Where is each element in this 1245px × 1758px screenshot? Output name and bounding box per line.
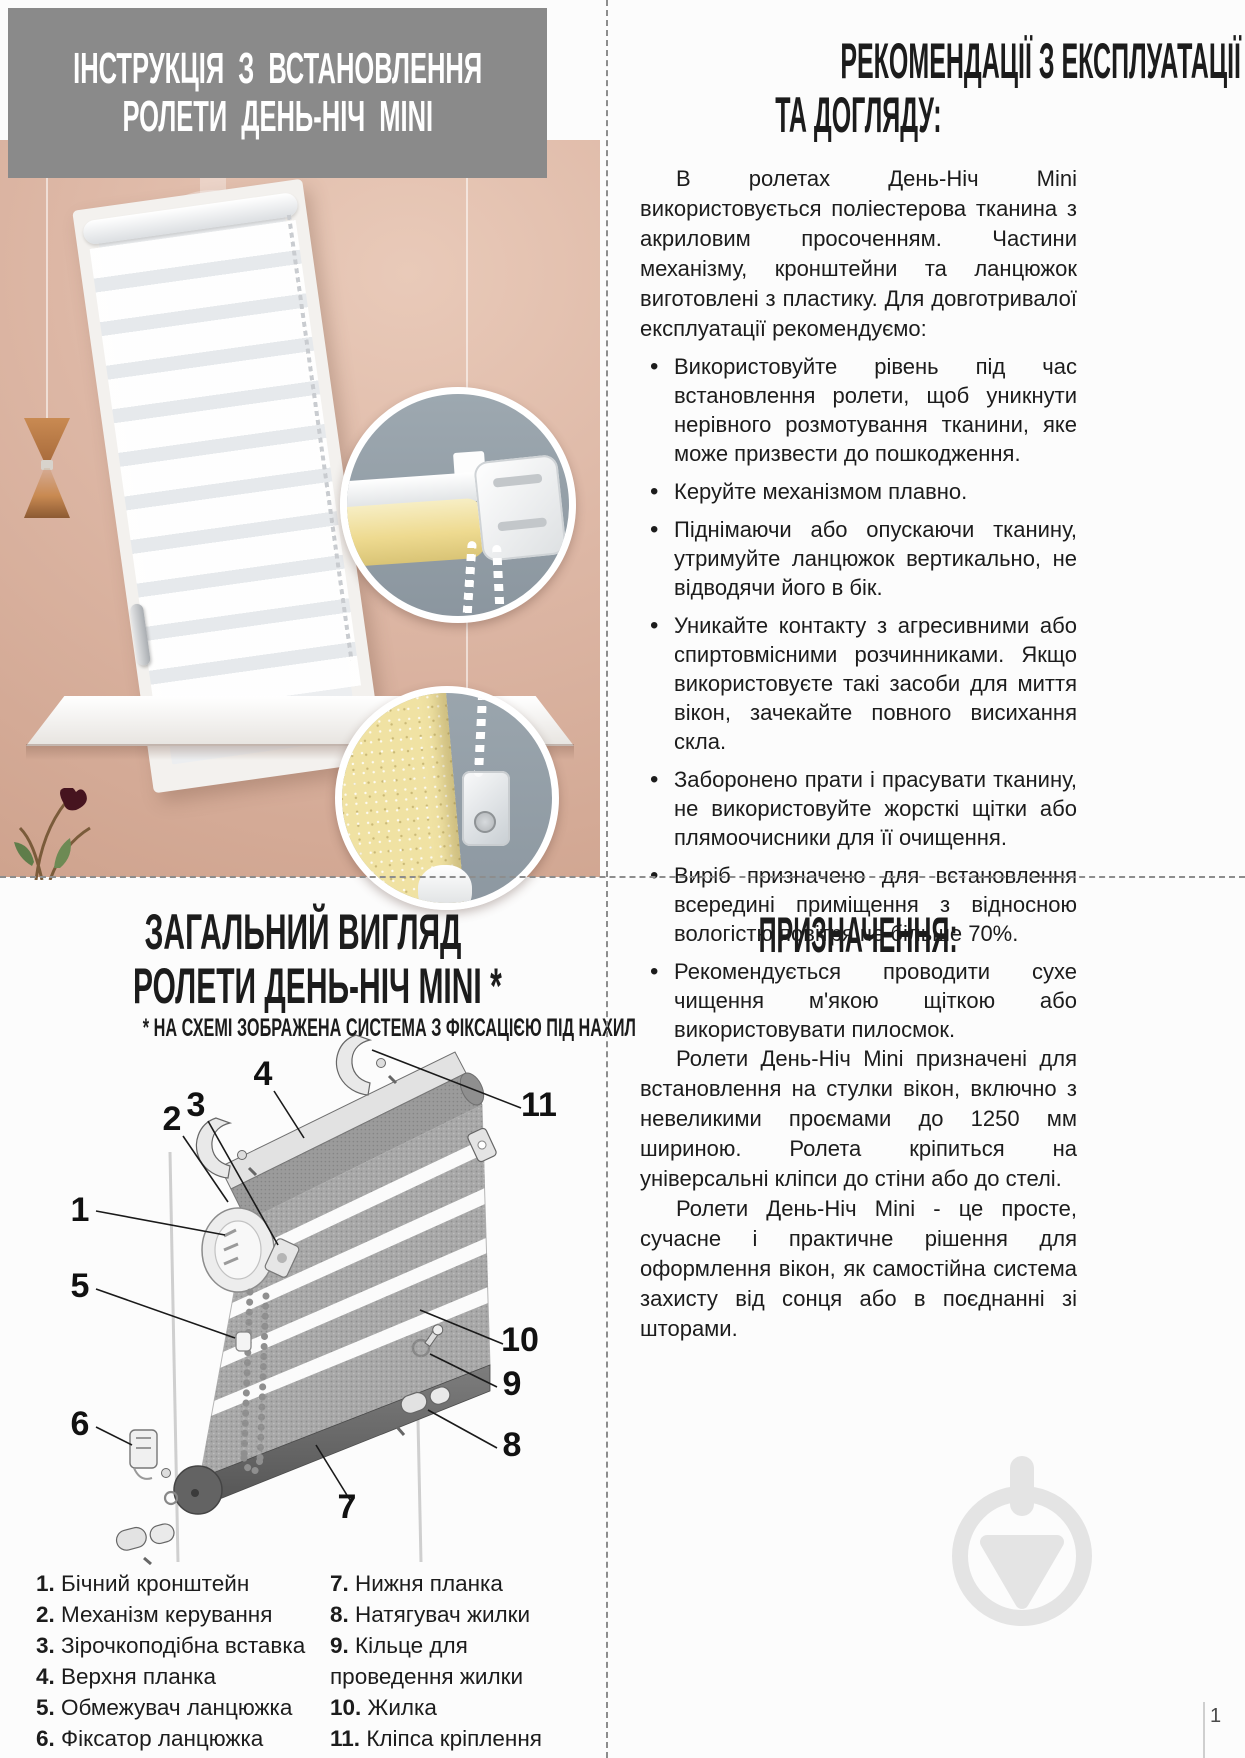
tensioner-screw [474,811,496,833]
legend-item: 8. Натягувач жилки [330,1599,582,1630]
chain-tensioner [462,771,510,847]
care-bullet: Керуйте механізмом плавно. [640,477,1077,506]
care-bullet: Заборонено прати і прасувати тканину, не… [640,765,1077,852]
instruction-page: ІНСТРУКЦІЯ З ВСТАНОВЛЕННЯ РОЛЕТИ ДЕНЬ-НІ… [0,0,1245,1758]
chain-fixator [130,1430,171,1479]
legend-item: 11. Кліпса кріплення [330,1723,582,1754]
legend-item: 1. Бічний кронштейн [36,1568,330,1599]
diagram-callout: 6 [71,1405,90,1443]
recommendations-section: РЕКОМЕНДАЦІЇ З ЕКСПЛУАТАЦІЇ ТА ДОГЛЯДУ: … [640,34,1077,1053]
screw [144,1558,151,1564]
diagram-callout: 1 [71,1191,90,1229]
purpose-title: ПРИЗНАЧЕННЯ: [759,908,958,962]
brand-watermark-icon [941,1454,1103,1644]
page-number: 1 [1210,1705,1221,1728]
legend-item: 4. Верхня планка [36,1661,330,1692]
purpose-paragraph: Ролети День-Ніч Mini призначені для вста… [640,1044,1077,1194]
recommendations-title-line2: ТА ДОГЛЯДУ: [775,88,941,142]
diagram-callout: 10 [501,1321,539,1359]
product-photo [0,140,600,877]
legend-item: 6. Фіксатор ланцюжка [36,1723,330,1754]
divider-horizontal [0,876,1245,878]
legend-column-left: 1. Бічний кронштейн 2. Механізм керуванн… [36,1568,330,1754]
diagram-callout: 3 [187,1086,206,1124]
purpose-paragraph: Ролети День-Ніч Mini - це просте, сучасн… [640,1194,1077,1344]
legend-item: 7. Нижня планка [330,1568,582,1599]
screw [377,1059,386,1068]
lamp-wire [46,140,48,420]
recommendations-intro: В ролетах День-Ніч Mini використовується… [640,164,1077,344]
purpose-section: ПРИЗНАЧЕННЯ: Ролети День-Ніч Mini призна… [640,908,1077,1344]
line-tensioner [114,1518,176,1554]
diagram-callout: 4 [254,1055,273,1093]
bead-chain [474,693,487,777]
diagram-callout: 11 [521,1086,557,1124]
overview-title-line2: РОЛЕТИ ДЕНЬ-НІЧ MINI * [133,959,502,1013]
pendant-lamp [24,418,70,518]
diagram-callout: 9 [503,1365,522,1403]
overview-header: ЗАГАЛЬНИЙ ВИГЛЯД РОЛЕТИ ДЕНЬ-НІЧ MINI * … [10,905,596,1042]
mounting-clip-left [197,1118,230,1178]
care-bullet: Піднімаючи або опускаючи тканину, утриму… [640,515,1077,602]
screw [397,1427,404,1435]
plant-decoration [6,788,146,880]
install-title-banner: ІНСТРУКЦІЯ З ВСТАНОВЛЕННЯ РОЛЕТИ ДЕНЬ-НІ… [8,8,547,178]
overview-subtitle: * НА СХЕМІ ЗОБРАЖЕНА СИСТЕМА З ФІКСАЦІЄЮ… [143,1015,636,1042]
day-night-blind-fabric [90,220,361,714]
page-number-divider [1203,1702,1205,1758]
install-title-line2: РОЛЕТИ ДЕНЬ-НІЧ MINI [122,93,433,141]
screw [238,1151,247,1160]
mounting-clip-right [337,1035,370,1095]
care-bullet: Використовуйте рівень під час встановлен… [640,352,1077,468]
diagram-callout: 8 [503,1426,522,1464]
legend-item: 10. Жилка [330,1692,582,1723]
control-mechanism [473,454,567,562]
legend-item: 2. Механізм керування [36,1599,330,1630]
legend-item: 9. Кільце для проведення жилки [330,1630,582,1692]
divider-vertical [606,0,608,1758]
legend-item: 3. Зірочкоподібна вставка [36,1630,330,1661]
legend-column-right: 7. Нижня планка 8. Натягувач жилки 9. Кі… [330,1568,582,1754]
bottom-bar-cap-dot [191,1489,199,1497]
diagram-callout: 2 [163,1100,182,1138]
control-mechanism-inner [215,1221,261,1279]
screw [389,1076,396,1083]
install-title-line1: ІНСТРУКЦІЯ З ВСТАНОВЛЕННЯ [73,45,482,93]
recommendations-title-line1: РЕКОМЕНДАЦІЇ З ЕКСПЛУАТАЦІЇ [840,34,1241,88]
diagram-callout: 5 [71,1267,90,1305]
diagram-callout: 7 [338,1488,357,1526]
detail-inset-mechanism [340,387,576,623]
bottom-bar-cap [174,1466,222,1514]
legend-item: 5. Обмежувач ланцюжка [36,1692,330,1723]
chain-limiter [236,1332,251,1351]
care-bullet: Уникайте контакту з агресивними або спир… [640,611,1077,756]
parts-legend: 1. Бічний кронштейн 2. Механізм керуванн… [36,1568,602,1754]
overview-title-line1: ЗАГАЛЬНИЙ ВИГЛЯД [145,905,462,959]
